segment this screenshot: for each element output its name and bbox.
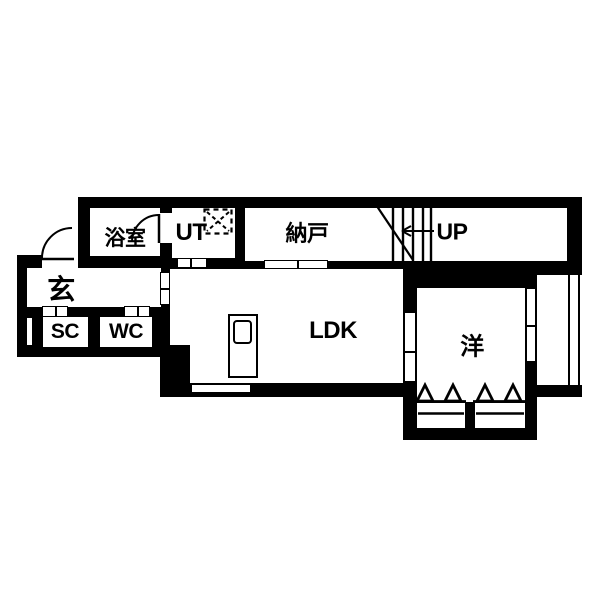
closet-left — [417, 403, 465, 428]
label-up: UP — [437, 219, 468, 246]
toilet-door — [124, 306, 150, 317]
kitchen-counter — [228, 314, 258, 378]
ldk-bottom-window — [192, 385, 250, 392]
bathroom-doorway — [160, 213, 172, 243]
utility-sliding-door — [177, 258, 207, 268]
label-western: 洋 — [460, 327, 484, 362]
storage-sliding-door — [264, 260, 328, 269]
room-ldk-lower — [190, 345, 403, 383]
balcony-rail-line — [568, 275, 570, 385]
entrance-ldk-door — [160, 272, 170, 305]
label-bathroom: 浴室 — [105, 222, 146, 252]
closet-right — [475, 403, 525, 428]
floor-plan: 浴室 UT 納戸 UP 玄 SC WC LDK 洋 — [0, 0, 600, 600]
wall-balcony-bottom — [537, 385, 582, 397]
room-ldk-upper — [170, 269, 403, 345]
label-storage: 納戸 — [285, 216, 328, 248]
balcony — [537, 275, 580, 385]
left-wall-window — [27, 318, 32, 345]
entrance-doorway — [42, 255, 78, 268]
ldk-western-door — [404, 312, 416, 382]
western-window — [526, 288, 536, 362]
label-ldk: LDK — [309, 317, 357, 345]
label-entrance: 玄 — [47, 268, 75, 308]
label-utility: UT — [176, 219, 207, 247]
label-toilet: WC — [109, 320, 143, 344]
label-shoe-closet: SC — [51, 320, 79, 344]
kitchen-sink-icon — [233, 320, 252, 344]
